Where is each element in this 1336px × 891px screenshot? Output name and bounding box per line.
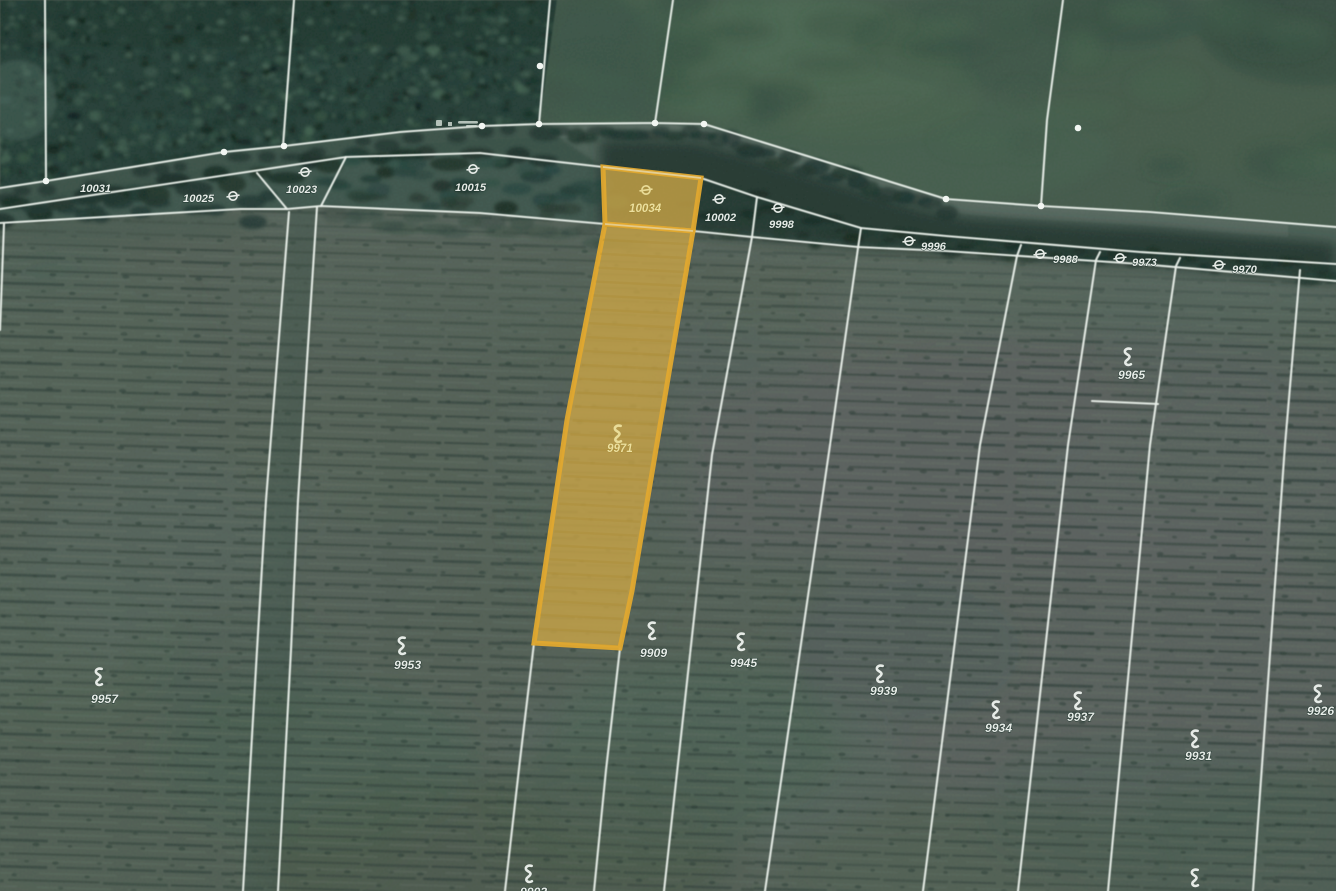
svg-text:9973: 9973 [1132, 257, 1158, 269]
svg-text:9953: 9953 [394, 658, 421, 672]
svg-text:9931: 9931 [1185, 749, 1212, 763]
svg-text:9971: 9971 [607, 442, 633, 455]
svg-text:9970: 9970 [1232, 264, 1258, 276]
svg-text:9939: 9939 [870, 684, 897, 698]
svg-text:9909: 9909 [640, 646, 667, 660]
svg-text:9937: 9937 [1067, 710, 1095, 724]
svg-text:10002: 10002 [705, 212, 737, 224]
svg-text:10015: 10015 [455, 182, 487, 194]
svg-text:9998: 9998 [769, 219, 795, 231]
svg-text:10031: 10031 [80, 183, 111, 195]
svg-text:10025: 10025 [183, 193, 215, 205]
svg-text:9965: 9965 [1118, 368, 1145, 382]
svg-text:9996: 9996 [921, 241, 947, 253]
svg-text:9903: 9903 [520, 885, 547, 891]
svg-text:9934: 9934 [985, 721, 1012, 735]
svg-text:10023: 10023 [286, 184, 318, 196]
svg-text:9988: 9988 [1053, 254, 1079, 266]
svg-text:10034: 10034 [629, 202, 662, 215]
svg-text:9957: 9957 [91, 692, 119, 706]
svg-text:9926: 9926 [1307, 704, 1334, 718]
svg-text:9945: 9945 [730, 656, 757, 670]
